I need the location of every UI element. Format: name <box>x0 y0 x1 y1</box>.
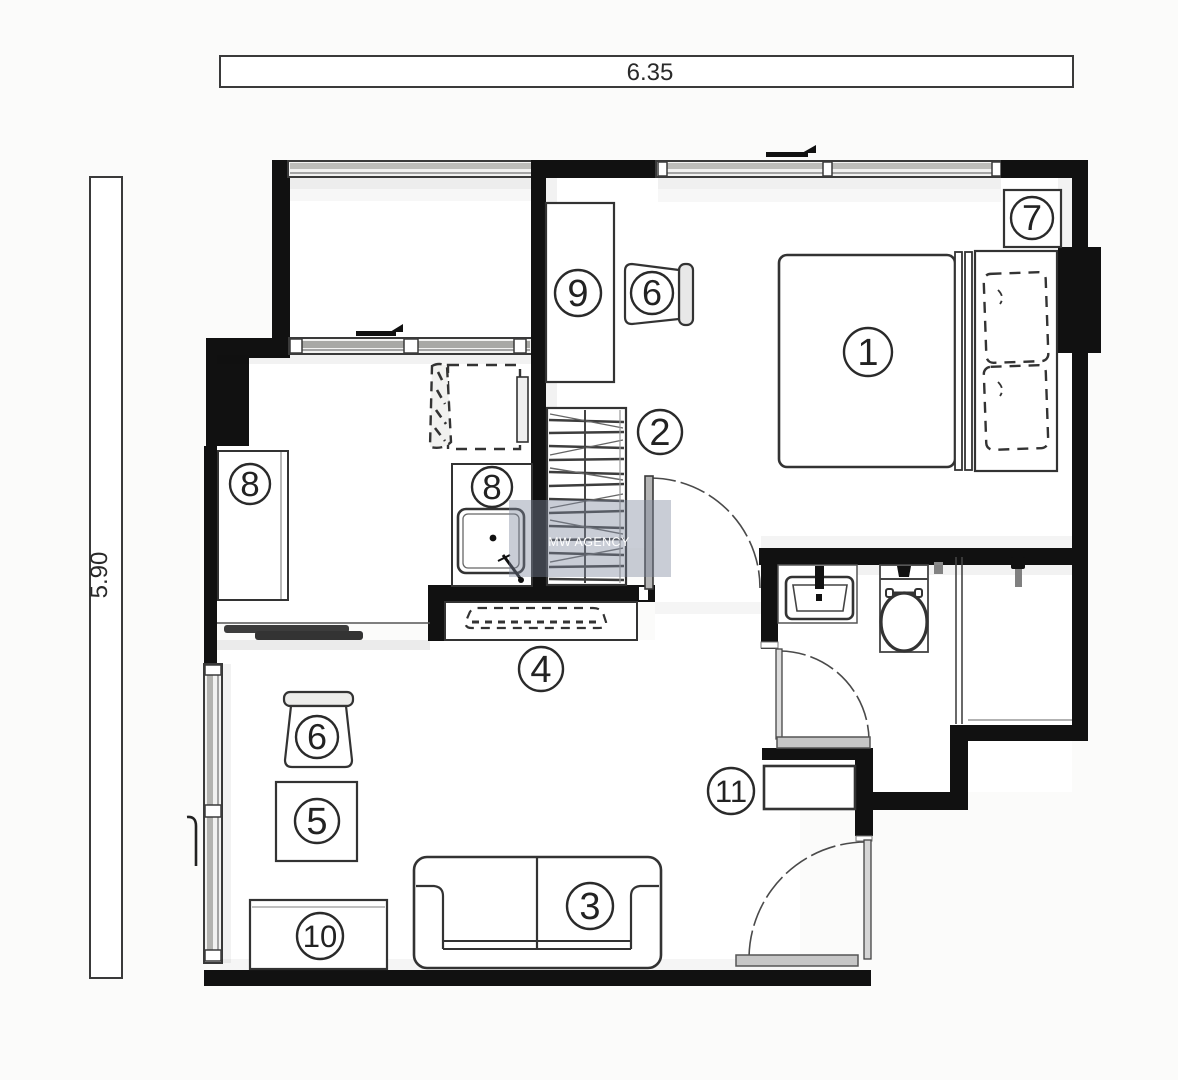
svg-text:MW AGENCY: MW AGENCY <box>548 535 630 549</box>
svg-text:3: 3 <box>579 886 600 928</box>
svg-text:11: 11 <box>715 774 747 809</box>
svg-text:4: 4 <box>530 649 551 691</box>
svg-text:6.35: 6.35 <box>627 59 674 86</box>
svg-text:8: 8 <box>482 468 501 507</box>
svg-text:2: 2 <box>649 412 670 454</box>
svg-text:5.90: 5.90 <box>86 552 113 599</box>
svg-text:7: 7 <box>1022 197 1042 238</box>
svg-text:6: 6 <box>642 272 662 313</box>
svg-text:8: 8 <box>240 465 259 504</box>
svg-text:5: 5 <box>306 801 327 843</box>
svg-text:9: 9 <box>567 273 588 315</box>
svg-text:10: 10 <box>303 919 337 954</box>
svg-text:6: 6 <box>307 716 327 757</box>
svg-text:1: 1 <box>857 332 878 374</box>
